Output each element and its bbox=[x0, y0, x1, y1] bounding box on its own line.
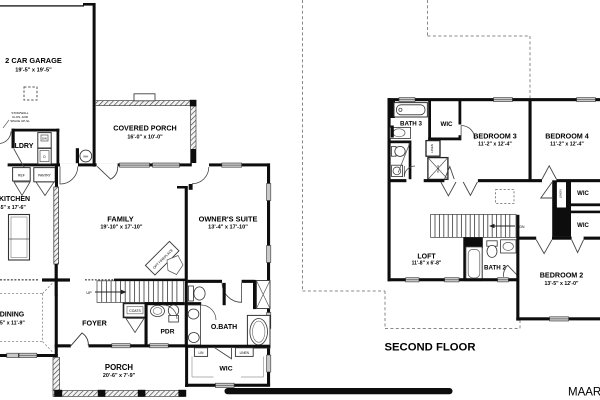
svg-text:12'-5" x 11'-9": 12'-5" x 11'-9" bbox=[0, 321, 25, 327]
svg-text:FAMILY: FAMILY bbox=[107, 215, 133, 224]
svg-text:11'-8" x 6'-8": 11'-8" x 6'-8" bbox=[412, 261, 442, 267]
svg-text:19'-10" x 17'-10": 19'-10" x 17'-10" bbox=[100, 225, 142, 231]
svg-text:UP: UP bbox=[86, 291, 92, 295]
svg-text:BEDROOM 2: BEDROOM 2 bbox=[540, 271, 584, 280]
svg-text:LOFT: LOFT bbox=[417, 254, 436, 261]
svg-text:11'-2" x 12'-4": 11'-2" x 12'-4" bbox=[478, 142, 512, 148]
svg-text:W-CH: W-CH bbox=[436, 165, 440, 173]
svg-text:16'-0" x 10'-0": 16'-0" x 10'-0" bbox=[127, 135, 163, 141]
svg-text:20'-6" x 7'-9": 20'-6" x 7'-9" bbox=[103, 373, 136, 379]
svg-text:COVERED PORCH: COVERED PORCH bbox=[113, 124, 177, 133]
svg-text:FOYER: FOYER bbox=[82, 319, 108, 328]
svg-text:11'-2" x 12'-4": 11'-2" x 12'-4" bbox=[550, 142, 584, 148]
svg-text:LDRY: LDRY bbox=[15, 143, 34, 150]
svg-text:2 CAR GARAGE: 2 CAR GARAGE bbox=[5, 56, 62, 65]
svg-text:WIC: WIC bbox=[219, 366, 232, 373]
svg-text:WIC: WIC bbox=[577, 191, 589, 197]
svg-text:PDR: PDR bbox=[161, 329, 175, 336]
svg-text:BEDROOM 4: BEDROOM 4 bbox=[545, 132, 589, 141]
svg-text:BEDROOM 3: BEDROOM 3 bbox=[473, 132, 517, 141]
svg-text:WH: WH bbox=[83, 155, 88, 159]
svg-text:DW: DW bbox=[42, 137, 47, 141]
svg-text:MAARS: MAARS bbox=[568, 387, 600, 399]
svg-text:WIC: WIC bbox=[440, 121, 453, 128]
svg-text:LINEN: LINEN bbox=[240, 351, 250, 355]
svg-text:13'-5" x 12'-0": 13'-5" x 12'-0" bbox=[545, 281, 579, 287]
svg-text:11'-5" x 17'-6": 11'-5" x 17'-6" bbox=[0, 205, 26, 211]
svg-text:BATH 3: BATH 3 bbox=[400, 121, 422, 128]
svg-text:LINEN: LINEN bbox=[430, 144, 434, 153]
svg-text:LINEN: LINEN bbox=[559, 189, 563, 198]
svg-text:PANTRY: PANTRY bbox=[38, 174, 52, 178]
svg-text:19'-5" x 19'-5": 19'-5" x 19'-5" bbox=[15, 68, 52, 74]
svg-text:OWNER'S SUITE: OWNER'S SUITE bbox=[199, 215, 258, 224]
svg-text:REF: REF bbox=[18, 173, 25, 177]
svg-text:DN: DN bbox=[520, 225, 525, 229]
svg-text:SECOND FLOOR: SECOND FLOOR bbox=[384, 342, 475, 354]
svg-text:13'-4" x 17'-10": 13'-4" x 17'-10" bbox=[208, 225, 248, 231]
svg-text:BATH 2: BATH 2 bbox=[484, 264, 506, 271]
svg-text:LIN: LIN bbox=[199, 351, 205, 355]
svg-text:O.BATH: O.BATH bbox=[211, 324, 237, 331]
svg-text:SPACE UP-SL: SPACE UP-SL bbox=[10, 119, 30, 123]
svg-text:COATS: COATS bbox=[129, 309, 141, 313]
svg-text:DINING: DINING bbox=[0, 312, 25, 319]
svg-text:PORCH: PORCH bbox=[105, 363, 134, 372]
svg-text:WIC: WIC bbox=[577, 223, 589, 229]
svg-text:KITCHEN: KITCHEN bbox=[0, 196, 30, 203]
